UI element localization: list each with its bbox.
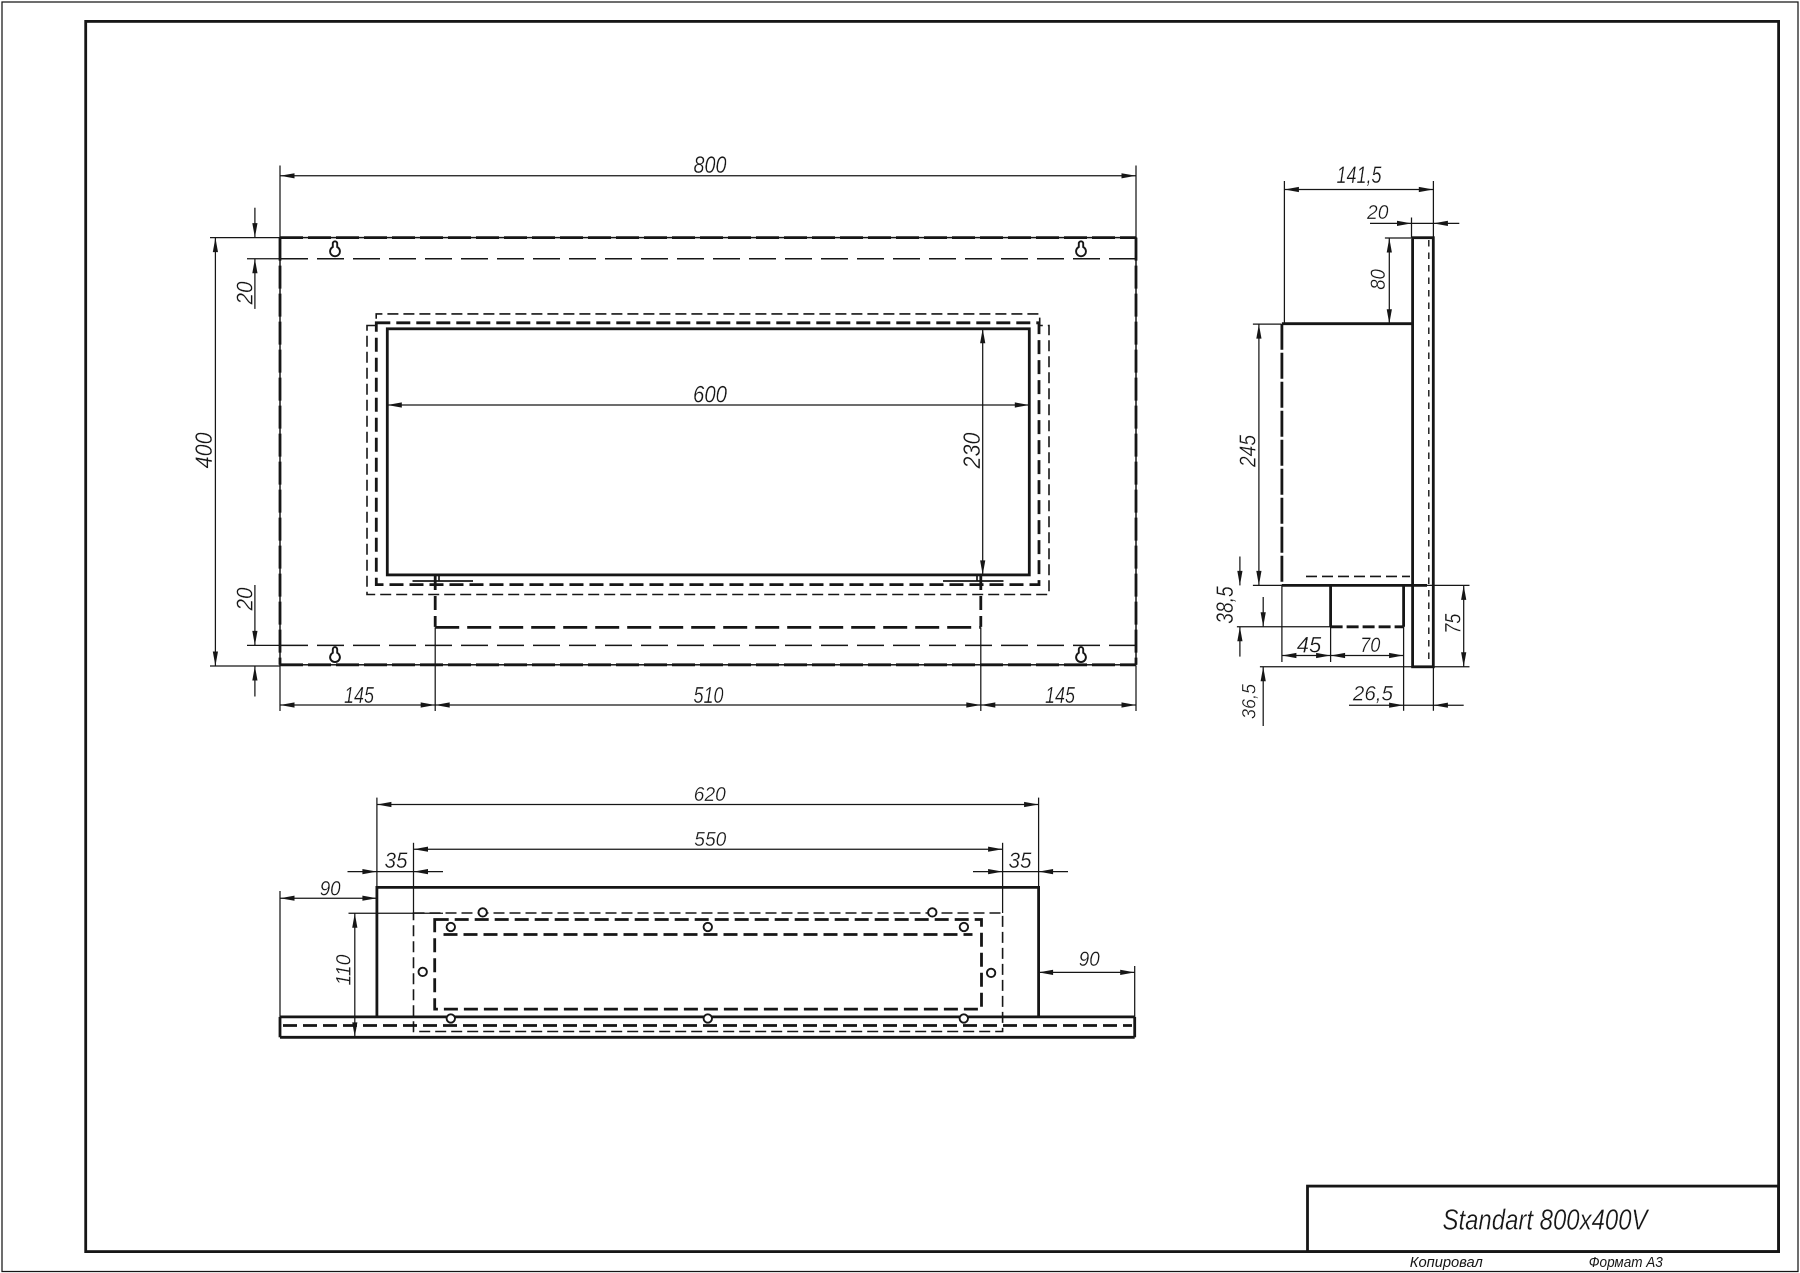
- svg-text:620: 620: [694, 783, 727, 806]
- svg-text:26,5: 26,5: [1352, 682, 1394, 706]
- svg-text:35: 35: [1009, 848, 1033, 873]
- svg-text:90: 90: [320, 877, 341, 901]
- svg-text:600: 600: [693, 381, 728, 408]
- svg-text:Формат А3: Формат А3: [1589, 1255, 1664, 1271]
- svg-text:400: 400: [191, 432, 218, 469]
- svg-text:800: 800: [694, 152, 728, 179]
- svg-text:38,5: 38,5: [1212, 586, 1239, 624]
- svg-text:75: 75: [1441, 613, 1466, 633]
- svg-text:35: 35: [385, 848, 409, 873]
- svg-text:20: 20: [232, 588, 258, 612]
- svg-text:20: 20: [1366, 201, 1389, 224]
- svg-text:90: 90: [1079, 947, 1100, 971]
- svg-text:145: 145: [344, 682, 374, 708]
- svg-text:36,5: 36,5: [1238, 684, 1260, 719]
- svg-text:245: 245: [1235, 435, 1261, 468]
- svg-text:45: 45: [1297, 633, 1322, 658]
- svg-text:230: 230: [959, 432, 986, 469]
- svg-text:145: 145: [1045, 682, 1075, 708]
- svg-text:Копировал: Копировал: [1410, 1255, 1483, 1271]
- svg-text:70: 70: [1360, 633, 1380, 657]
- svg-text:110: 110: [333, 954, 356, 985]
- svg-text:80: 80: [1366, 269, 1390, 290]
- svg-text:141,5: 141,5: [1337, 162, 1382, 189]
- svg-text:510: 510: [694, 682, 724, 708]
- svg-text:20: 20: [232, 282, 258, 306]
- svg-text:550: 550: [694, 828, 727, 851]
- svg-text:Standart 800x400V: Standart 800x400V: [1443, 1205, 1650, 1237]
